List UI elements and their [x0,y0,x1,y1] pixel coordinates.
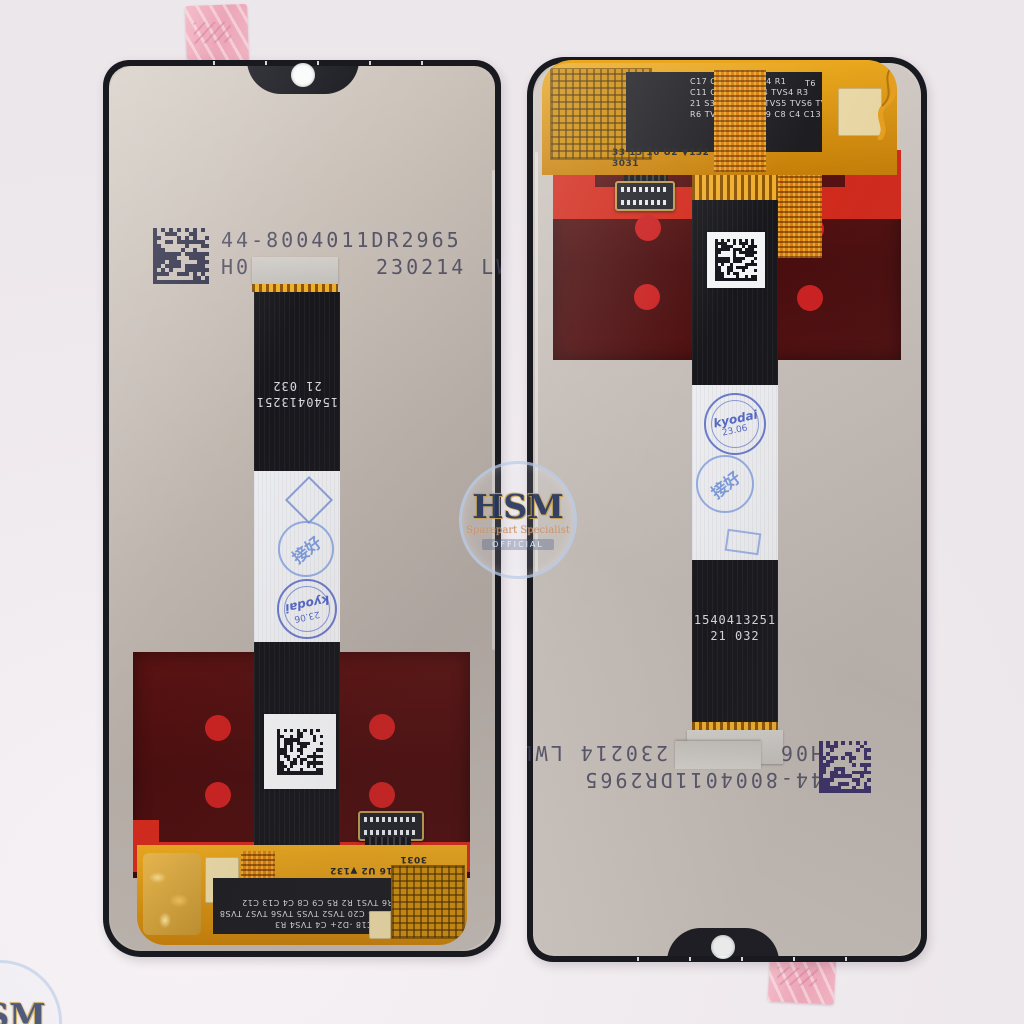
diamond-stamp [285,476,333,524]
silkscreen-row: C11 C18 -D2+ C4 TVS4 R3 [219,919,393,930]
square-stamp [725,529,762,556]
flex-batch-text: 21 032 [254,378,340,394]
gold-wire-curl [842,60,897,140]
flex-end-overlap-right [675,741,761,769]
maker-stamp: kyodai 23.06 [704,393,766,455]
alignment-dot [369,782,395,808]
silkscreen-row: 21 S3 C20 TVS2 TVS5 TVS6 TVS7 TVS8 [219,908,393,919]
watermark-subtitle: Sparepart Specialist [466,525,570,536]
check-stamp-text: 接好 [705,465,745,504]
silkscreen-row: R6 TVS1 R2 R5 C9 C8 C4 C13 C12 [219,897,393,908]
contact-pad [369,911,391,939]
camera-hole-left [291,63,315,87]
serial-suffix-right: 230214 LWL [527,740,668,766]
datamatrix-sticker-right [715,239,757,281]
board-connector-right [615,181,675,211]
serial-block-right: 44-8004011DR2965 H06 230214 LWL [555,737,823,793]
flex-cable-right-lower: 1540413251 21 032 [692,560,778,722]
connector-pins [621,200,669,205]
flex-code-text: 1540413251 [692,612,778,628]
datamatrix-serial-left [153,228,209,284]
camera-hole-right [711,935,735,959]
serial-line1-left: 44-8004011DR2965 [221,227,462,253]
alignment-dot [635,215,661,241]
flex-print-right: 1540413251 21 032 [692,612,778,644]
right-display-assembly: kyodai 23.06 接好 1540413251 21 032 [527,57,927,962]
watermark-title: HSM [472,490,564,523]
flex-label-right: kyodai 23.06 接好 [692,385,778,560]
edge-reflection [492,170,495,650]
check-stamp-text: 接好 [286,530,326,569]
flex-cable-right-upper [692,200,778,385]
check-stamp: 接好 [278,521,334,577]
alignment-dot [797,285,823,311]
product-photo: 44-8004011DR2965 H06 230214 LWL 15404132… [0,0,1024,1024]
datamatrix-serial-right [819,741,871,793]
gold-pad-grid-left [391,865,465,939]
hsm-watermark: HSM Sparepart Specialist OFFICIAL [459,461,577,579]
connector-pins [364,817,418,822]
serial-prefix-right: H06 [778,740,823,766]
qr-sticker-right [707,232,765,288]
flex-gold-contacts-left [252,284,338,292]
watermark-badge: OFFICIAL [482,539,554,550]
datamatrix-sticker-left [277,729,323,775]
display-notch-left [247,60,359,94]
alignment-dot [634,284,660,310]
antenna-ticks [637,957,857,961]
watermark-title: HSM [0,999,46,1024]
silkscreen-t6: T6 [805,78,816,89]
flex-gold-contacts-right [692,722,778,730]
alignment-dot [205,715,231,741]
connector-pins [621,187,669,192]
antenna-ticks [213,61,433,65]
gold-flex-board-right: C17 C7 C5 C10 R4 R1 C11 C18 -D2+ C4 TVS4… [542,60,897,175]
serial-suffix-left: 230214 LWL [376,254,501,280]
flex-end-tab-left [252,257,338,284]
flex-label-left: 接好 kyodai 23.06 [254,471,340,642]
alignment-dot [369,714,395,740]
silkscreen-row5-right: 33 15 16 U2 ▼132 3031 [612,148,732,170]
check-stamp: 接好 [696,455,754,513]
flex-cable-left-upper: 1540413251 21 032 [254,292,340,471]
flex-print-left: 1540413251 21 032 [254,378,340,410]
gold-foil [143,853,201,935]
alignment-dot [205,782,231,808]
pink-tape-top [185,4,249,64]
gold-flex-board-left: C11 C18 -D2+ C4 TVS4 R3 21 S3 C20 TVS2 T… [137,845,467,945]
left-display-assembly: 44-8004011DR2965 H06 230214 LWL 15404132… [103,60,501,957]
hsm-watermark-corner: HSM Sparepart Specialist [0,960,62,1024]
maker-stamp: kyodai 23.06 [277,579,337,639]
flex-batch-text: 21 032 [692,628,778,644]
serial-line1-right: 44-8004011DR2965 [582,767,823,793]
connector-pins [364,830,418,835]
qr-sticker-left [264,714,336,789]
flex-code-text: 1540413251 [254,394,340,410]
